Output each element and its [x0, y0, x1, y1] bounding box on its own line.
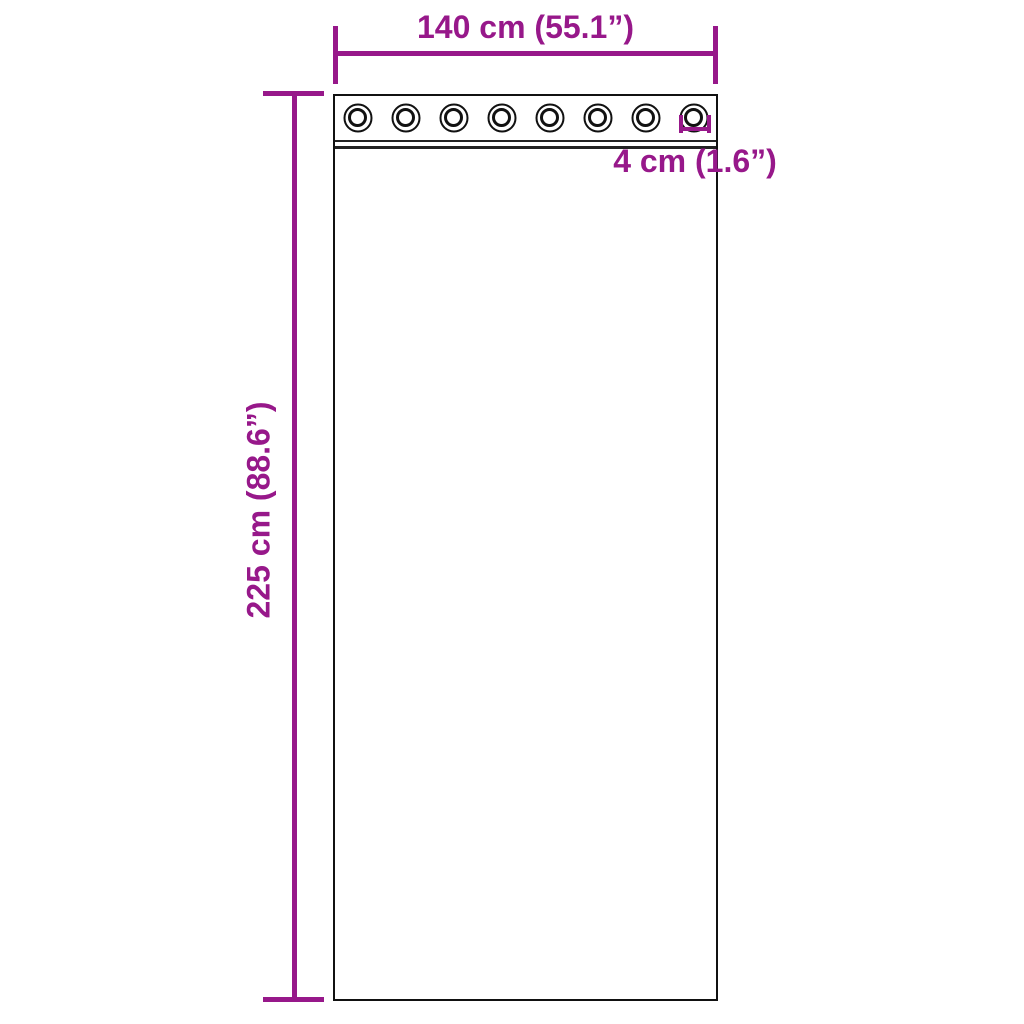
grommet-1 — [343, 103, 372, 132]
width-dimension-left-cap — [333, 26, 338, 84]
grommet-hole-icon — [444, 108, 463, 127]
grommet-hole-icon — [492, 108, 511, 127]
curtain-dimension-diagram: 140 cm (55.1”) 225 cm (88.6”) 4 cm (1.6”… — [0, 0, 1024, 1024]
grommet-row — [333, 94, 718, 142]
grommet-6 — [583, 103, 612, 132]
grommet-3 — [439, 103, 468, 132]
grommet-4 — [487, 103, 516, 132]
grommet-diameter-label: 4 cm (1.6”) — [613, 143, 777, 180]
grommet-hole-icon — [540, 108, 559, 127]
width-dimension-label: 140 cm (55.1”) — [333, 9, 718, 46]
height-dimension-top-cap — [263, 91, 324, 96]
height-dimension-bottom-cap — [263, 997, 324, 1002]
grommet-7 — [631, 103, 660, 132]
width-dimension-right-cap — [713, 26, 718, 84]
grommet-hole-icon — [684, 108, 703, 127]
grommet-hole-icon — [348, 108, 367, 127]
grommet-2 — [391, 103, 420, 132]
height-dimension-label: 225 cm (88.6”) — [241, 401, 278, 618]
grommet-hole-icon — [588, 108, 607, 127]
grommet-hole-icon — [636, 108, 655, 127]
grommet-5 — [535, 103, 564, 132]
height-dimension-line — [292, 91, 297, 1002]
width-dimension-line — [333, 51, 718, 56]
grommet-hole-icon — [396, 108, 415, 127]
grommet-diameter-connector — [679, 127, 711, 131]
curtain-panel — [333, 94, 718, 1001]
